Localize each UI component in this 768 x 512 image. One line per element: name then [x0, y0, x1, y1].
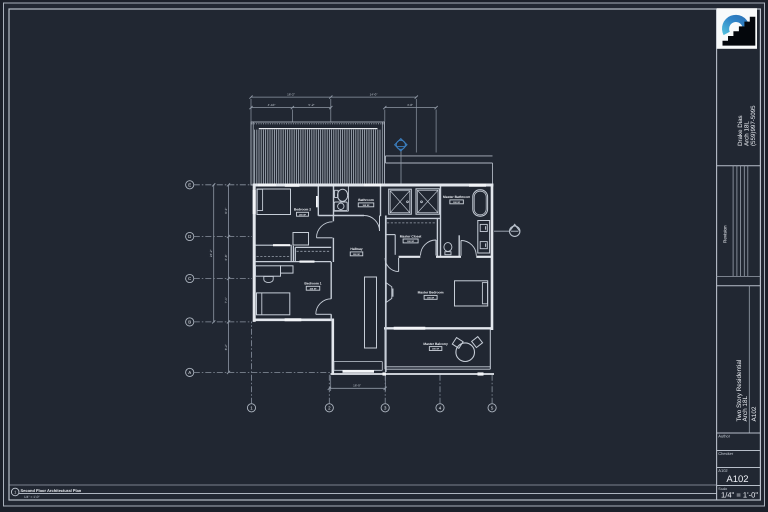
svg-text:1/4" = 1'-0": 1/4" = 1'-0"	[721, 491, 758, 500]
svg-text:150 SF: 150 SF	[427, 297, 435, 300]
svg-text:Checker: Checker	[718, 451, 734, 456]
svg-text:150 SF: 150 SF	[299, 213, 307, 216]
svg-text:A102: A102	[726, 474, 748, 485]
svg-text:14’-0”: 14’-0”	[370, 92, 378, 96]
svg-text:Bedroom 1: Bedroom 1	[304, 282, 321, 286]
svg-text:4’-10”: 4’-10”	[268, 103, 276, 107]
svg-text:16’-2”: 16’-2”	[287, 92, 295, 96]
svg-text:1/4" = 1'-0": 1/4" = 1'-0"	[24, 495, 40, 499]
svg-text:Master Bathroom: Master Bathroom	[443, 195, 470, 199]
svg-text:5’-2”: 5’-2”	[308, 103, 314, 107]
svg-text:16’-0”: 16’-0”	[353, 384, 361, 388]
svg-text:Master Closet: Master Closet	[400, 234, 423, 238]
svg-text:Bedroom 2: Bedroom 2	[294, 208, 311, 212]
svg-text:(559)997-5095: (559)997-5095	[750, 105, 757, 146]
svg-text:C: C	[188, 276, 191, 281]
svg-text:Bathroom: Bathroom	[358, 198, 374, 202]
svg-text:Arch 18L: Arch 18L	[742, 395, 749, 421]
svg-text:A102: A102	[751, 406, 758, 421]
svg-text:150 SF: 150 SF	[432, 348, 440, 351]
svg-text:24’-2”: 24’-2”	[209, 249, 213, 257]
svg-text:8’-2”: 8’-2”	[224, 344, 228, 350]
svg-text:8’-3”: 8’-3”	[224, 208, 228, 214]
svg-text:Revision: Revision	[723, 225, 728, 243]
svg-text:7’-1”: 7’-1”	[224, 297, 228, 303]
svg-text:B: B	[188, 320, 191, 325]
svg-text:6’-8”: 6’-8”	[224, 254, 228, 260]
svg-text:150 SF: 150 SF	[309, 287, 317, 290]
svg-text:4’-8”: 4’-8”	[407, 103, 413, 107]
svg-text:Master Bedroom: Master Bedroom	[418, 291, 444, 295]
svg-text:Master Balcony: Master Balcony	[423, 342, 448, 346]
svg-text:150 SF: 150 SF	[362, 204, 370, 207]
svg-text:A: A	[188, 370, 191, 375]
svg-text:Second Floor Architectural Pla: Second Floor Architectural Plan	[21, 488, 82, 493]
svg-text:150 SF: 150 SF	[353, 253, 361, 256]
svg-text:E: E	[188, 182, 191, 187]
svg-text:Hallway: Hallway	[350, 247, 362, 251]
svg-text:D: D	[188, 234, 191, 239]
svg-text:150 SF: 150 SF	[453, 201, 461, 204]
svg-text:A102: A102	[718, 468, 728, 473]
svg-text:150 SF: 150 SF	[407, 240, 415, 243]
svg-text:Author: Author	[718, 434, 730, 439]
